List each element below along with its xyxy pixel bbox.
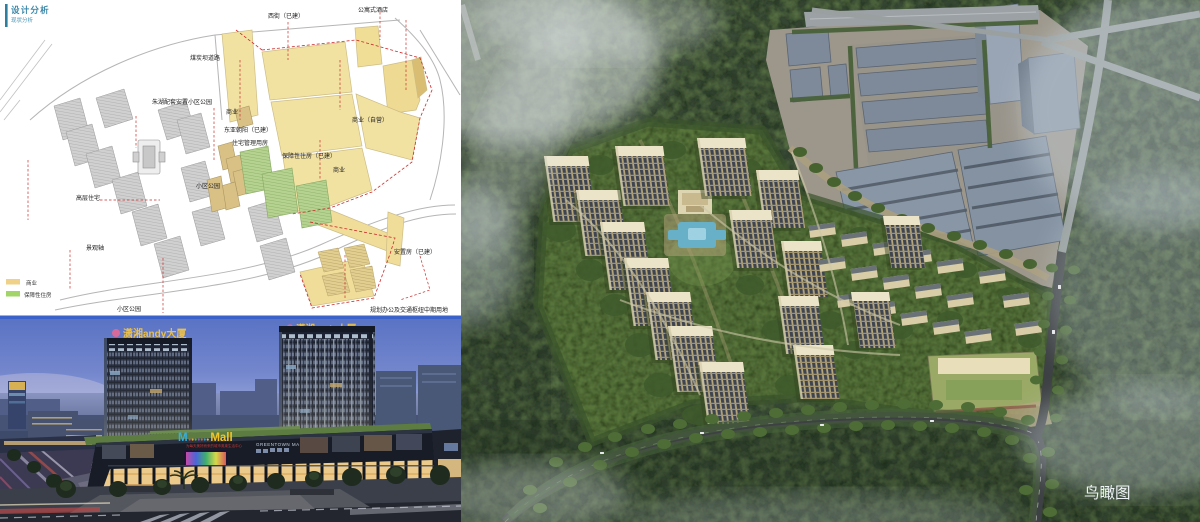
svg-text:GREENTOWN MALL: GREENTOWN MALL	[256, 442, 306, 447]
svg-text:鸟瞰图: 鸟瞰图	[1084, 484, 1131, 502]
svg-text:煤炭坝道路: 煤炭坝道路	[190, 54, 220, 62]
svg-text:规划办公及交通枢纽中期用地: 规划办公及交通枢纽中期用地	[370, 306, 448, 314]
svg-text:设计分析: 设计分析	[11, 5, 50, 15]
svg-text:东亚朝阳（已建）: 东亚朝阳（已建）	[224, 126, 272, 134]
svg-text:高层住宅: 高层住宅	[76, 194, 100, 202]
svg-text:商业: 商业	[226, 108, 238, 116]
svg-text:商业（自营）: 商业（自营）	[352, 116, 388, 124]
svg-text:公寓式酒店: 公寓式酒店	[358, 6, 388, 14]
svg-text:为每天美好而来的城市奥莱生活中心: 为每天美好而来的城市奥莱生活中心	[186, 443, 242, 448]
svg-text:商业: 商业	[26, 279, 38, 287]
svg-text:安置房（已建）: 安置房（已建）	[394, 248, 436, 256]
svg-text:小区公园: 小区公园	[117, 305, 141, 313]
svg-text:保障性住房（已建）: 保障性住房（已建）	[282, 152, 336, 160]
svg-text:小区公园: 小区公园	[196, 182, 220, 190]
svg-text:现状分析: 现状分析	[11, 16, 34, 24]
svg-text:西街（已建）: 西街（已建）	[268, 12, 304, 20]
svg-text:保障性住房: 保障性住房	[24, 291, 52, 299]
svg-text:商业: 商业	[333, 166, 345, 174]
svg-text:朱湖配套安置小区公园: 朱湖配套安置小区公园	[152, 98, 212, 106]
svg-text:景观轴: 景观轴	[86, 244, 104, 252]
svg-text:住宅管理用房: 住宅管理用房	[232, 139, 268, 147]
